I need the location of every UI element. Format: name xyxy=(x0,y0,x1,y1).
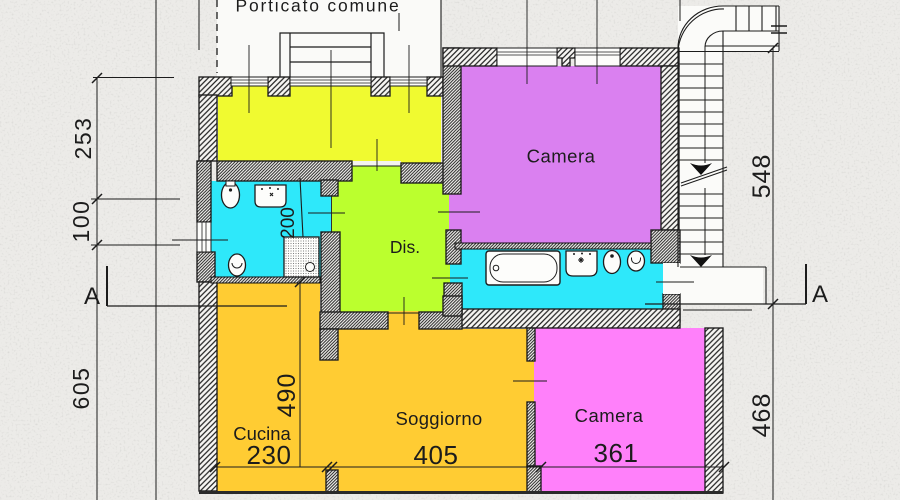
svg-text:548: 548 xyxy=(748,154,776,199)
svg-text:405: 405 xyxy=(414,440,459,470)
svg-text:100: 100 xyxy=(68,200,94,243)
svg-text:605: 605 xyxy=(68,367,94,410)
svg-text:468: 468 xyxy=(748,393,776,438)
svg-text:490: 490 xyxy=(273,373,301,418)
svg-text:Dis.: Dis. xyxy=(390,237,420,257)
svg-text:230: 230 xyxy=(247,440,292,470)
svg-text:Soggiorno: Soggiorno xyxy=(395,408,482,429)
svg-text:Porticato comune: Porticato comune xyxy=(236,0,401,16)
svg-text:200: 200 xyxy=(278,207,299,239)
svg-text:Camera: Camera xyxy=(527,146,596,167)
svg-text:361: 361 xyxy=(594,438,639,468)
svg-text:Camera: Camera xyxy=(575,405,644,426)
svg-text:A: A xyxy=(812,281,828,308)
svg-text:253: 253 xyxy=(70,117,96,160)
svg-text:A: A xyxy=(84,283,100,310)
